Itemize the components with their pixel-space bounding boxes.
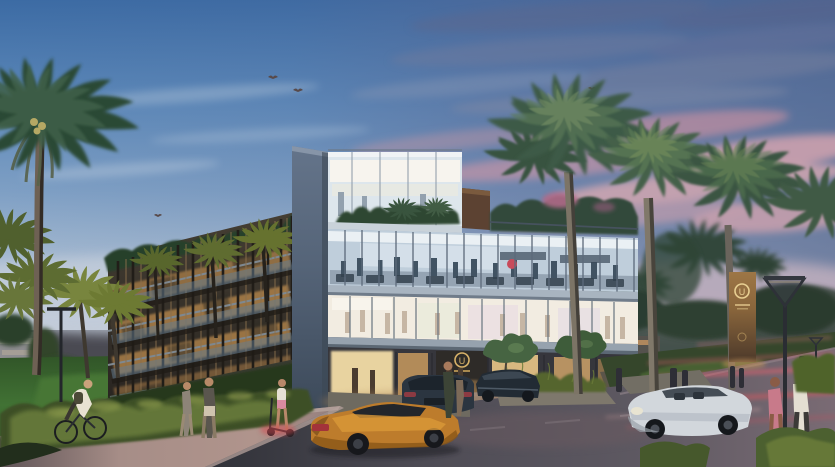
svg-text:U: U	[459, 356, 466, 366]
svg-text:U: U	[739, 287, 746, 297]
